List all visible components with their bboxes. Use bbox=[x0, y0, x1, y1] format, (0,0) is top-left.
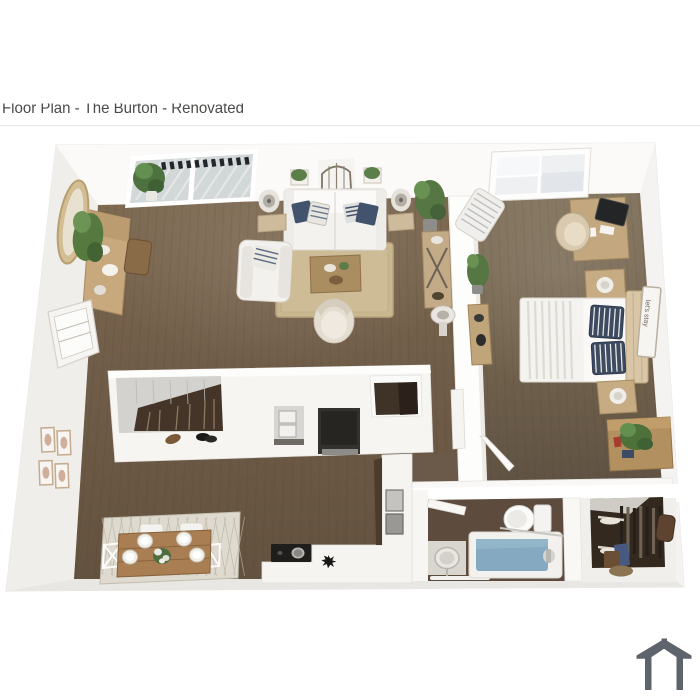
svg-text:Floor Plan - The Burton - Reno: Floor Plan - The Burton - Renovated bbox=[2, 100, 244, 117]
